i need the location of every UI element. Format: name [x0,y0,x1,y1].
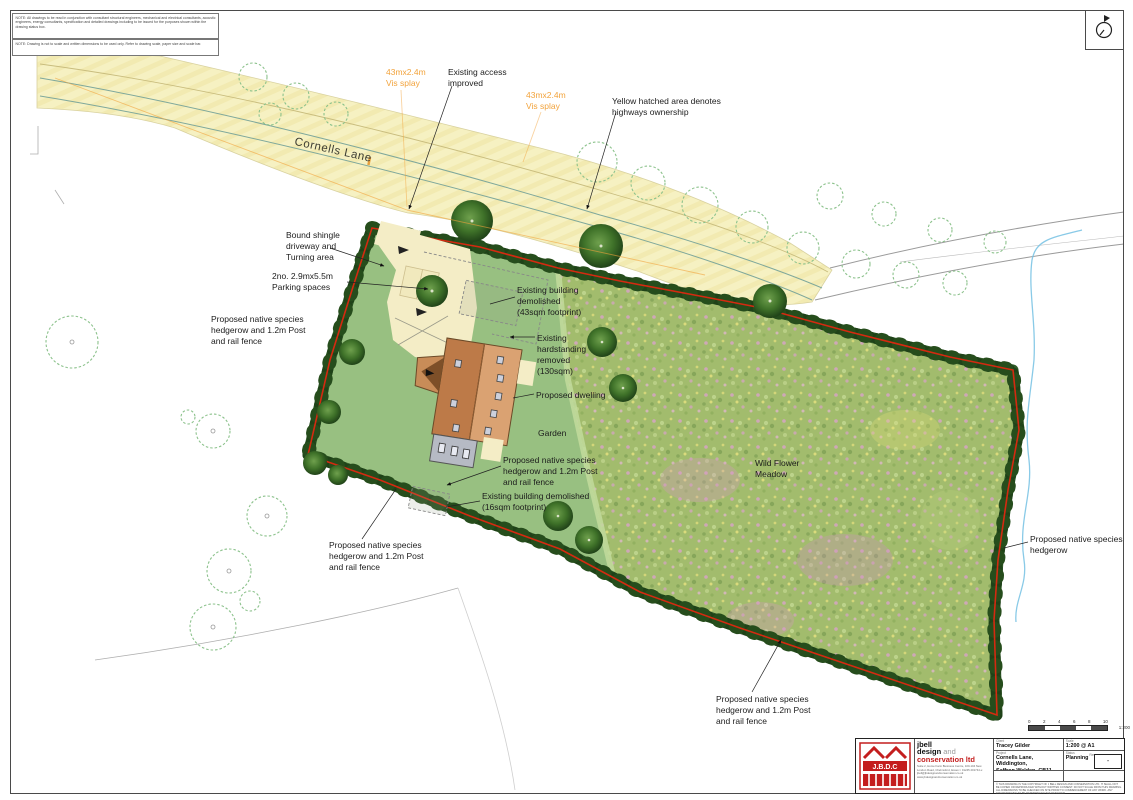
field-scale: Scale 1:200 @ A1 [1064,739,1124,750]
svg-text:J.B.D.C: J.B.D.C [873,764,898,771]
scale-ratio: 1:200 [1119,725,1130,730]
label-hedgerow-left: Proposed native specieshedgerow and 1.2m… [211,314,306,347]
general-notes-2: NOTE: Drawing is not to scale and writte… [12,39,219,56]
label-hedgerow-right: Proposed native specieshedgerow [1030,534,1123,556]
stream-line [1016,230,1082,622]
label-demolished-43: Existing buildingdemolished(43sqm footpr… [517,285,581,318]
label-proposed-dwelling: Proposed dwelling [536,390,605,401]
north-arrow-icon [1086,10,1124,49]
company-logo: J.B.D.C [856,739,915,793]
north-arrow-box [1085,10,1124,50]
field-drawing: Drawing Proposed Site Plan [994,771,1064,781]
outline-tree-centers [70,340,269,629]
label-demolished-16: Existing building demolished(16sqm footp… [482,491,589,513]
label-bound-shingle: Bound shingledriveway andTurning area [286,230,340,263]
company-details: jbell design and conservation ltd Suite … [915,739,994,793]
drawing-sheet: NOTE: All drawings to be read in conjunc… [0,0,1133,800]
field-rev-value: - [1094,754,1122,769]
general-notes-1: NOTE: All drawings to be read in conjunc… [12,13,219,39]
scale-bar: 02 46 810 1:200 [1028,719,1108,731]
field-client: Client Tracey Gilder [994,739,1064,750]
jbdc-logo-icon: J.B.D.C [859,742,911,790]
field-project: Project Cornells Lane, Widdington, Saffr… [994,751,1064,770]
scale-bar-segments [1028,725,1108,731]
label-hedgerow-bottom: Proposed native specieshedgerow and 1.2m… [716,694,811,727]
label-hardstanding: Existinghardstandingremoved(130sqm) [537,333,586,377]
label-highways-ownership: Yellow hatched area denoteshighways owne… [612,96,721,118]
label-hedgerow-mid: Proposed native specieshedgerow and 1.2m… [503,455,598,488]
title-block-fields: Client Tracey Gilder Scale 1:200 @ A1 Pr… [994,739,1124,793]
title-block: J.B.D.C jbell design and conservation lt… [855,738,1125,794]
road-continuation [815,212,1124,300]
company-address: Suite 2, Home Farm Business Centre, 100-… [917,765,991,780]
label-existing-access: Existing accessimproved [448,67,507,89]
company-name-3: conservation ltd [917,756,991,764]
label-hedgerow-bottom-left: Proposed native specieshedgerow and 1.2m… [329,540,424,573]
copyright-note: © THIS DRAWING IS THE COPYRIGHT OF J BEL… [994,782,1124,797]
label-vis-splay-1: 43mx2.4mVis splay [386,67,426,89]
scale-bar-ticks: 02 46 810 [1028,719,1108,724]
label-vis-splay-2: 43mx2.4mVis splay [526,90,566,112]
field-drgno: Drg No 2022-698-053 [1064,771,1124,781]
label-parking: 2no. 2.9mx5.5mParking spaces [272,271,333,293]
field-status: Status Planning Rev - [1064,751,1124,770]
label-wildflower-meadow: Wild FlowerMeadow [755,458,799,480]
label-garden: Garden [538,428,566,439]
